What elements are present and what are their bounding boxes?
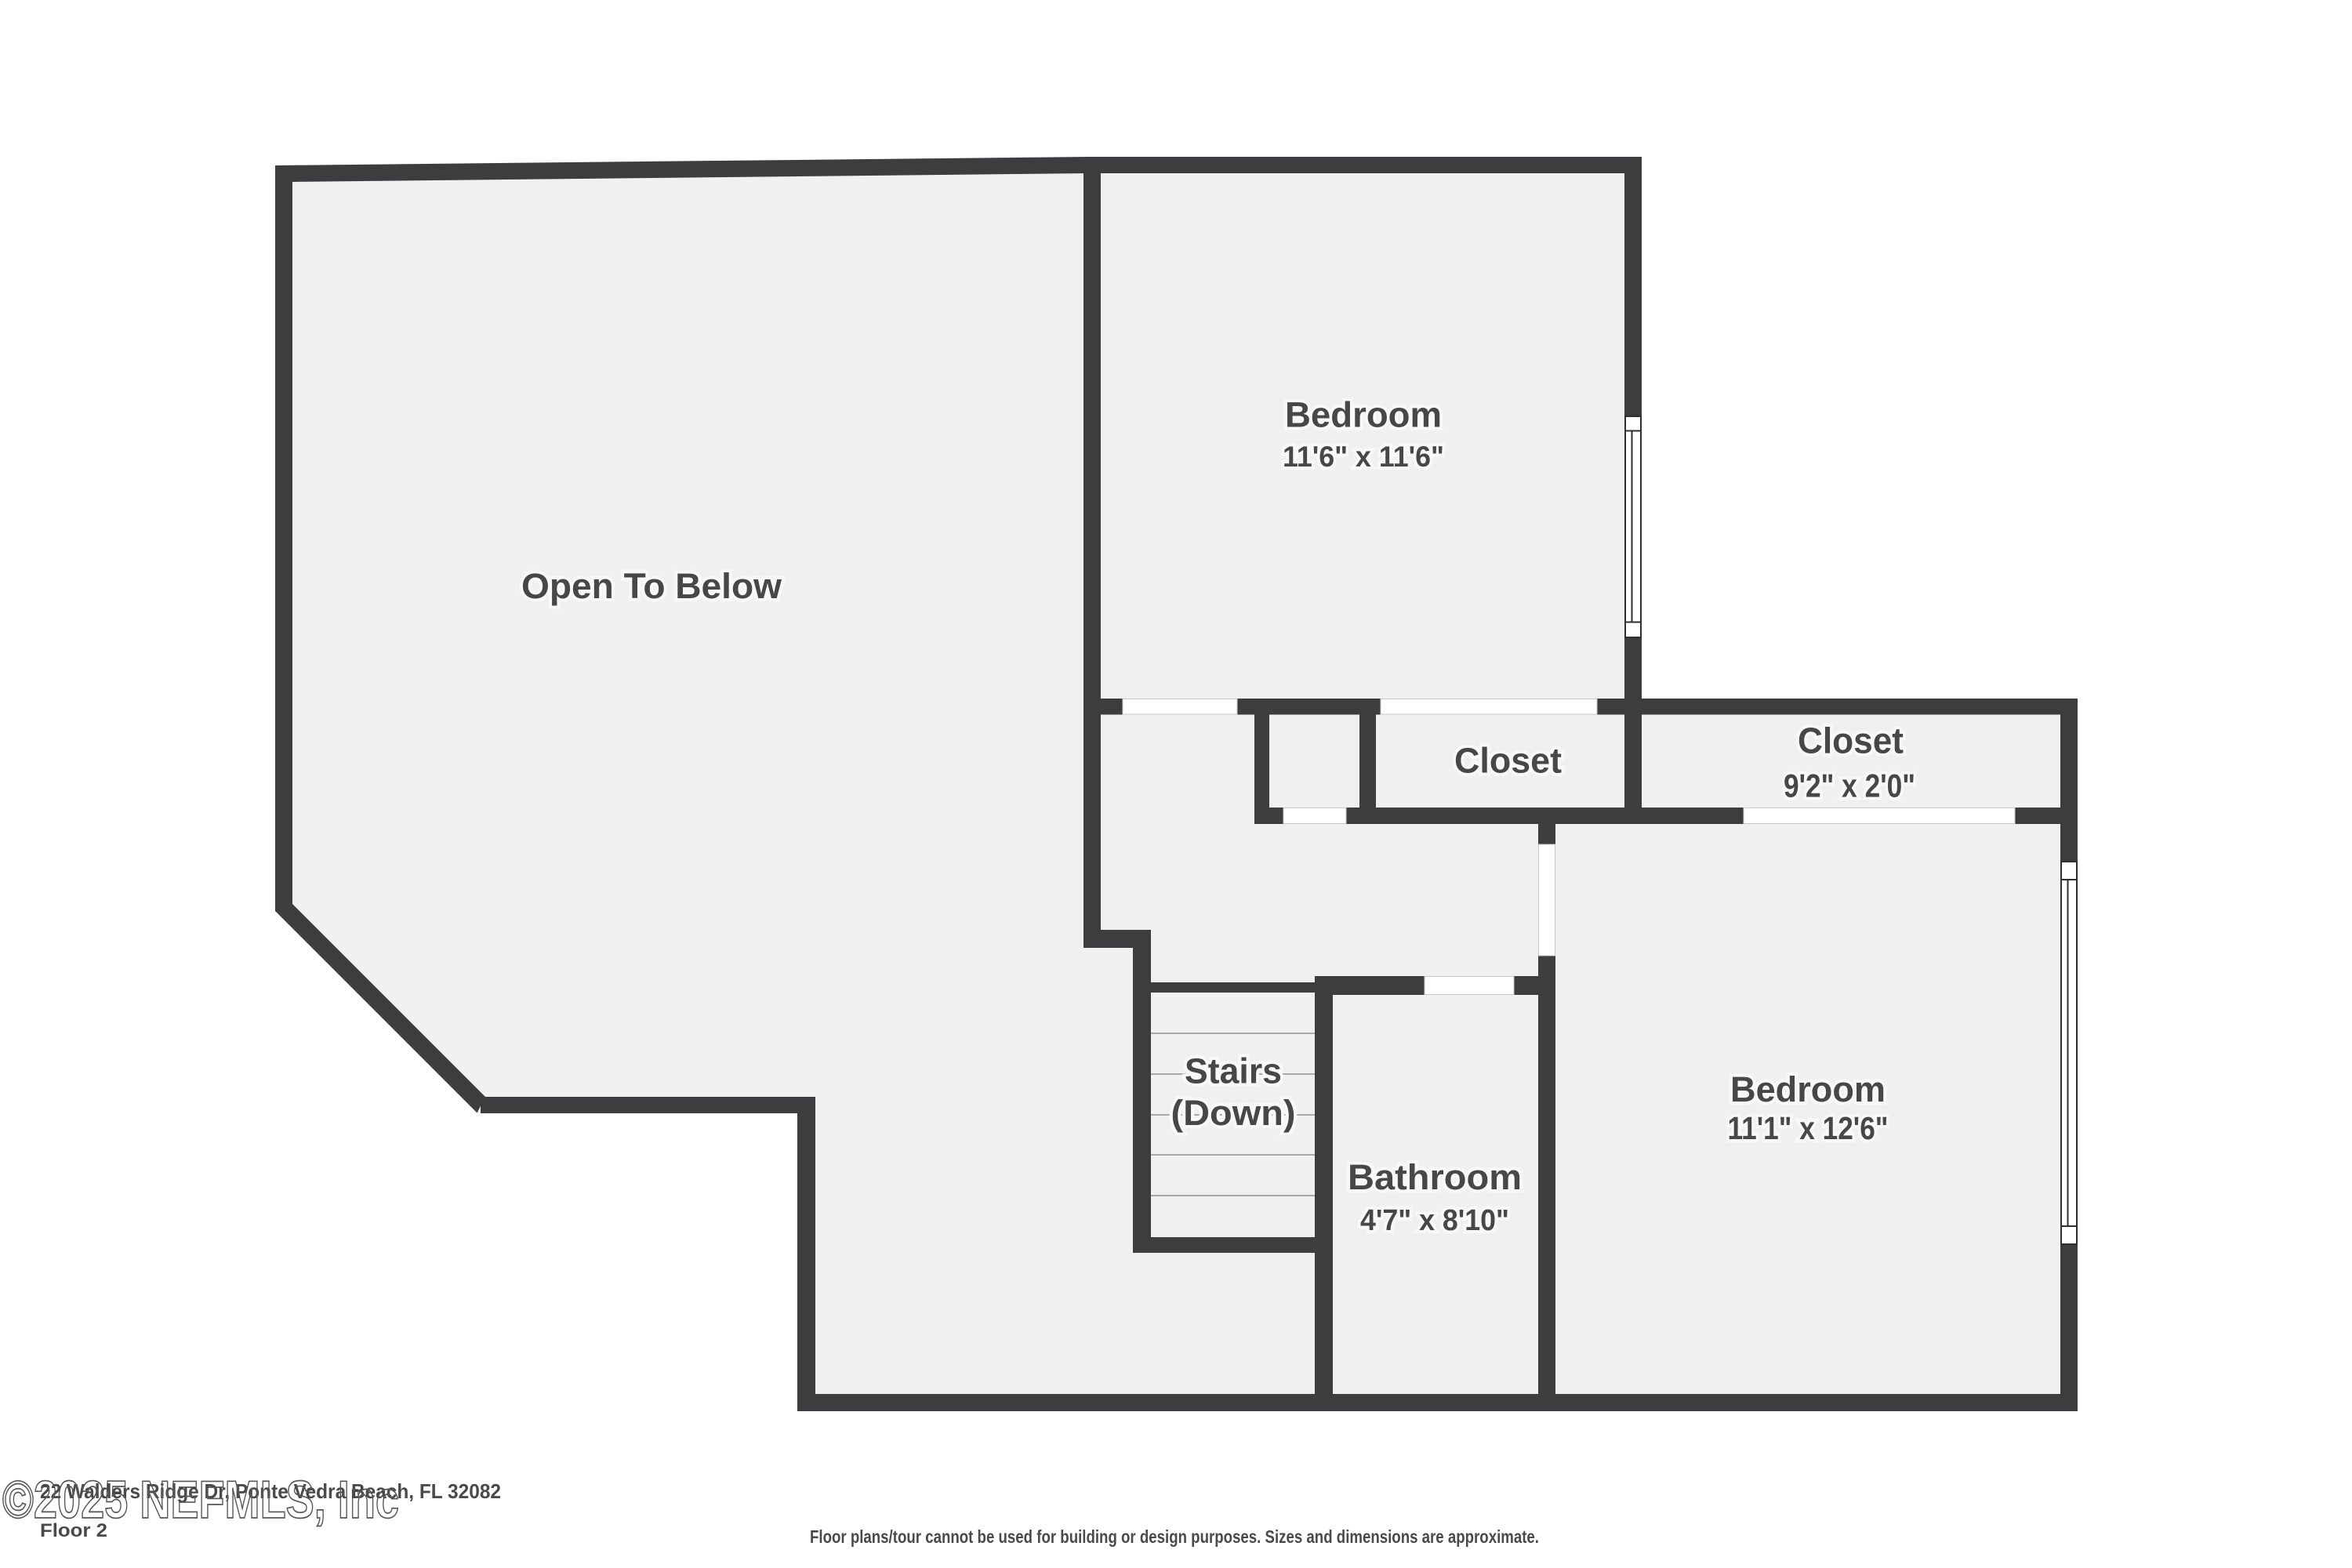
svg-text:Bedroom: Bedroom [1285, 395, 1442, 435]
svg-text:©2025 NEFMLS, Inc: ©2025 NEFMLS, Inc [2, 1470, 399, 1530]
svg-text:Closet: Closet [1798, 720, 1904, 761]
svg-text:Floor plans/tour cannot be use: Floor plans/tour cannot be used for buil… [810, 1526, 1539, 1547]
svg-text:Bathroom: Bathroom [1348, 1157, 1522, 1197]
svg-text:Stairs: Stairs [1185, 1051, 1282, 1091]
svg-text:11'1" x 12'6": 11'1" x 12'6" [1728, 1110, 1889, 1146]
svg-text:9'2" x 2'0": 9'2" x 2'0" [1784, 768, 1915, 804]
svg-text:Closet: Closet [1454, 741, 1562, 781]
svg-text:(Down): (Down) [1171, 1093, 1296, 1133]
svg-text:Open To Below: Open To Below [521, 566, 782, 606]
svg-text:4'7" x 8'10": 4'7" x 8'10" [1360, 1204, 1509, 1237]
svg-text:Bedroom: Bedroom [1730, 1069, 1886, 1109]
svg-text:11'6" x 11'6": 11'6" x 11'6" [1283, 441, 1444, 473]
